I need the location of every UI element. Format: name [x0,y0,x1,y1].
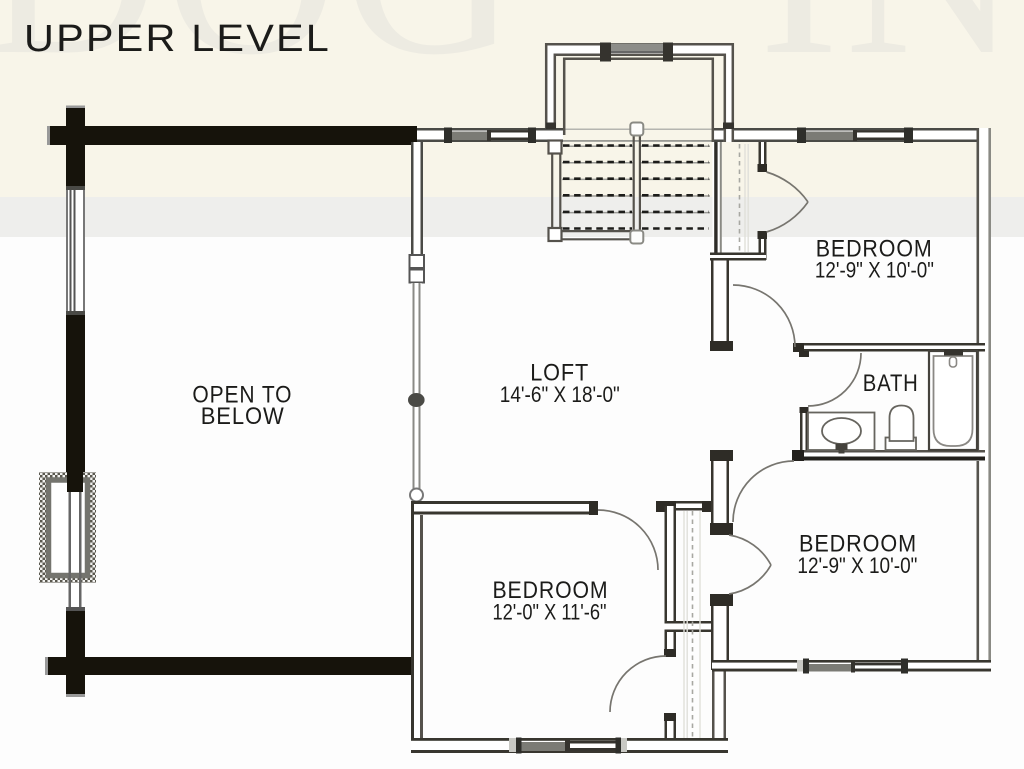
svg-text:BATH: BATH [863,370,919,397]
svg-text:BELOW: BELOW [201,403,285,430]
svg-text:12'-0" X 11'-6": 12'-0" X 11'-6" [493,600,607,625]
svg-text:12'-9" X 10'-0": 12'-9" X 10'-0" [815,257,934,282]
svg-text:12'-9" X 10'-0": 12'-9" X 10'-0" [797,553,917,578]
svg-text:UPPER LEVEL: UPPER LEVEL [24,18,331,60]
svg-text:14'-6" X 18'-0": 14'-6" X 18'-0" [500,382,620,407]
